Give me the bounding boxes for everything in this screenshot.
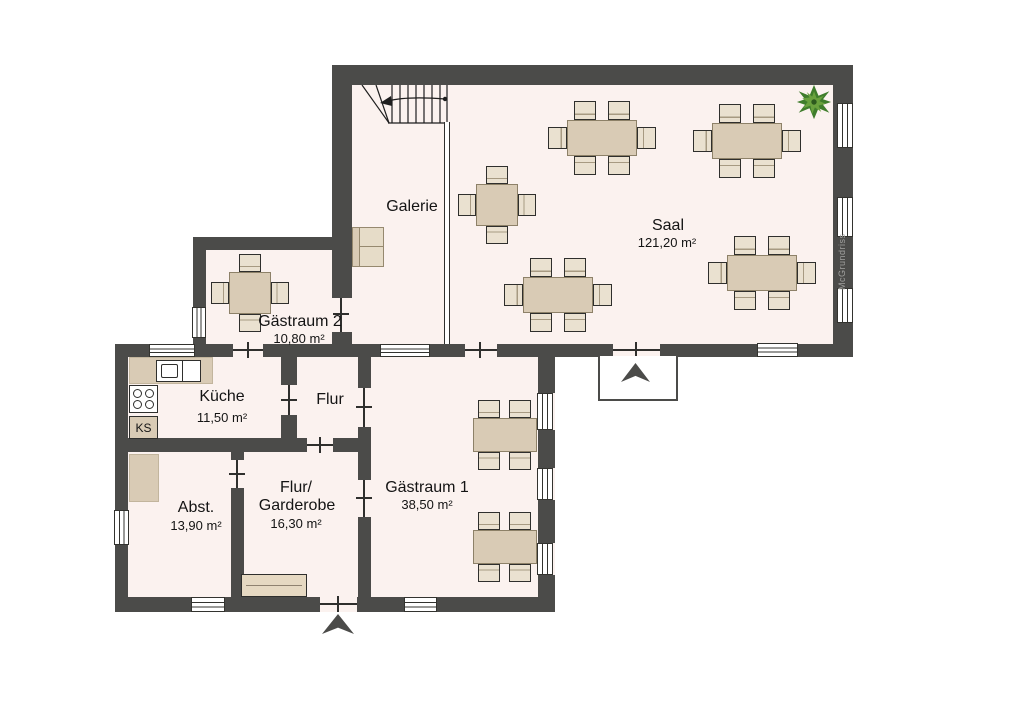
chair [693, 130, 712, 152]
wall [225, 597, 320, 612]
burner [133, 389, 142, 398]
sink-divider [182, 361, 183, 381]
door-tick [247, 342, 249, 358]
dining-table-4 [457, 165, 537, 245]
chair [768, 291, 790, 310]
burner [133, 400, 142, 409]
chair [211, 282, 229, 304]
dining-table-4 [473, 511, 537, 583]
wall [538, 430, 555, 468]
wall [437, 597, 555, 612]
room-area-gaestraum1: 38,50 m² [401, 498, 452, 511]
window [114, 510, 129, 545]
sofa [352, 227, 384, 267]
chair [478, 400, 500, 418]
kitchen-sink [156, 360, 201, 382]
door-tick [319, 437, 321, 453]
window [380, 344, 430, 357]
window [192, 307, 206, 338]
entrance-porch [598, 356, 678, 401]
table-top [712, 123, 782, 159]
chair [486, 226, 508, 244]
chair [734, 291, 756, 310]
wall [333, 65, 853, 85]
wall [358, 517, 371, 597]
wall [358, 427, 371, 480]
chair [782, 130, 801, 152]
table-top [523, 277, 593, 313]
room-area-kueche: 11,50 m² [197, 411, 247, 424]
chair [564, 258, 586, 277]
table-top [476, 184, 518, 226]
burner [145, 400, 154, 409]
chair [478, 452, 500, 470]
wall [281, 357, 297, 385]
chair [708, 262, 727, 284]
wall [538, 500, 555, 543]
chair [509, 512, 531, 530]
wall [115, 438, 307, 452]
wall [497, 344, 613, 357]
entrance-arrow-icon [322, 614, 354, 634]
chair [593, 284, 612, 306]
staircase [352, 85, 449, 124]
room-area-abst: 13,90 m² [170, 519, 221, 532]
sofa-back [353, 228, 360, 266]
door-tick [229, 473, 245, 475]
sideboard-line [246, 585, 302, 586]
fridge: KS [129, 416, 158, 439]
window [537, 543, 553, 575]
chair [239, 254, 261, 272]
chair [637, 127, 656, 149]
table-top [229, 272, 271, 314]
dining-table-6 [707, 234, 817, 310]
window [537, 393, 553, 430]
room-label-galerie: Galerie [386, 199, 438, 215]
chair [719, 159, 741, 178]
wall [193, 237, 345, 250]
sofa-cushion-line [360, 246, 383, 247]
chair [753, 159, 775, 178]
room-label-saal: Saal [652, 218, 684, 234]
door-tick [281, 399, 297, 401]
chair [509, 564, 531, 582]
chair [753, 104, 775, 123]
chair [734, 236, 756, 255]
chair [504, 284, 523, 306]
chair [719, 104, 741, 123]
watermark: McGrundriss [837, 238, 847, 290]
wall [115, 344, 150, 357]
chair [478, 564, 500, 582]
chair [530, 258, 552, 277]
window [191, 597, 225, 612]
wall [281, 415, 297, 438]
room-label-kueche: Küche [199, 389, 244, 405]
room-label-flur-garderobe-1: Flur/ [280, 480, 312, 496]
fridge-label: KS [135, 421, 151, 435]
room-label-flur-garderobe-2: Garderobe [259, 498, 336, 514]
chair [797, 262, 816, 284]
window [837, 288, 853, 323]
cabinet [129, 454, 159, 502]
window [757, 343, 798, 357]
chair [509, 400, 531, 418]
wall [115, 545, 128, 597]
wall [115, 597, 192, 612]
wall [193, 250, 206, 307]
wall [358, 357, 371, 388]
chair [478, 512, 500, 530]
wall [231, 452, 244, 460]
chair [608, 156, 630, 175]
burner [145, 389, 154, 398]
dining-table-4 [473, 399, 537, 471]
room-label-gaestraum2: Gästraum 2 [258, 314, 342, 330]
table-top [567, 120, 637, 156]
plant-icon [795, 84, 833, 120]
sideboard [241, 574, 307, 597]
wall [430, 344, 465, 357]
table-top [727, 255, 797, 291]
chair [518, 194, 536, 216]
door-saal-gaestraum1 [465, 349, 497, 351]
stove [129, 385, 158, 413]
wall [357, 597, 405, 612]
wall [538, 357, 555, 393]
room-area-saal: 121,20 m² [638, 236, 697, 249]
dining-table-6 [503, 256, 613, 332]
floor-plan: KS Galerie Saal 121,20 m² Gästraum 2 10,… [0, 0, 1024, 724]
window [537, 468, 553, 500]
wall [115, 357, 128, 510]
window [404, 597, 437, 612]
wall [798, 344, 853, 357]
door-tick [479, 342, 481, 358]
dining-table-6 [692, 102, 802, 178]
chair [458, 194, 476, 216]
sink-basin [161, 364, 178, 378]
chair [271, 282, 289, 304]
room-area-gaestraum2: 10,80 m² [273, 332, 324, 345]
window [149, 344, 195, 357]
wall [538, 575, 555, 597]
table-top [473, 418, 537, 452]
chair [574, 156, 596, 175]
dining-table-6 [547, 99, 657, 175]
door-tick [356, 406, 372, 408]
chair [486, 166, 508, 184]
window [837, 197, 853, 237]
chair [530, 313, 552, 332]
chair [574, 101, 596, 120]
room-label-flur: Flur [316, 392, 344, 408]
gallery-railing [444, 122, 450, 344]
wall [332, 65, 352, 298]
chair [548, 127, 567, 149]
room-area-flur-garderobe: 16,30 m² [270, 517, 321, 530]
chair [564, 313, 586, 332]
room-label-abst: Abst. [178, 500, 214, 516]
table-top [473, 530, 537, 564]
door-tick [356, 497, 372, 499]
door-tick [337, 596, 339, 612]
window [837, 103, 853, 148]
chair [768, 236, 790, 255]
room-label-gaestraum1: Gästraum 1 [385, 480, 469, 496]
chair [509, 452, 531, 470]
chair [608, 101, 630, 120]
